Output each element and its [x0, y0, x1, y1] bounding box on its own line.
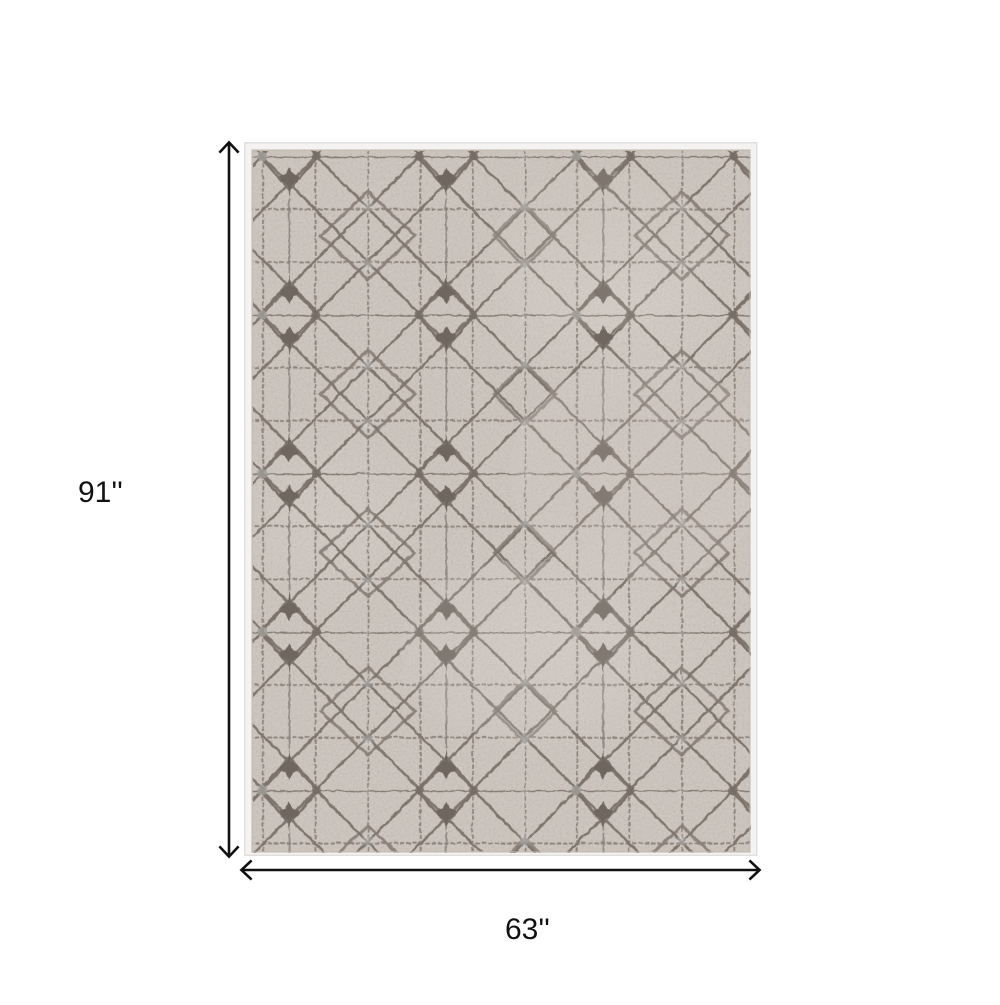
- svg-text:91'': 91'': [78, 476, 123, 509]
- svg-text:63'': 63'': [505, 913, 550, 946]
